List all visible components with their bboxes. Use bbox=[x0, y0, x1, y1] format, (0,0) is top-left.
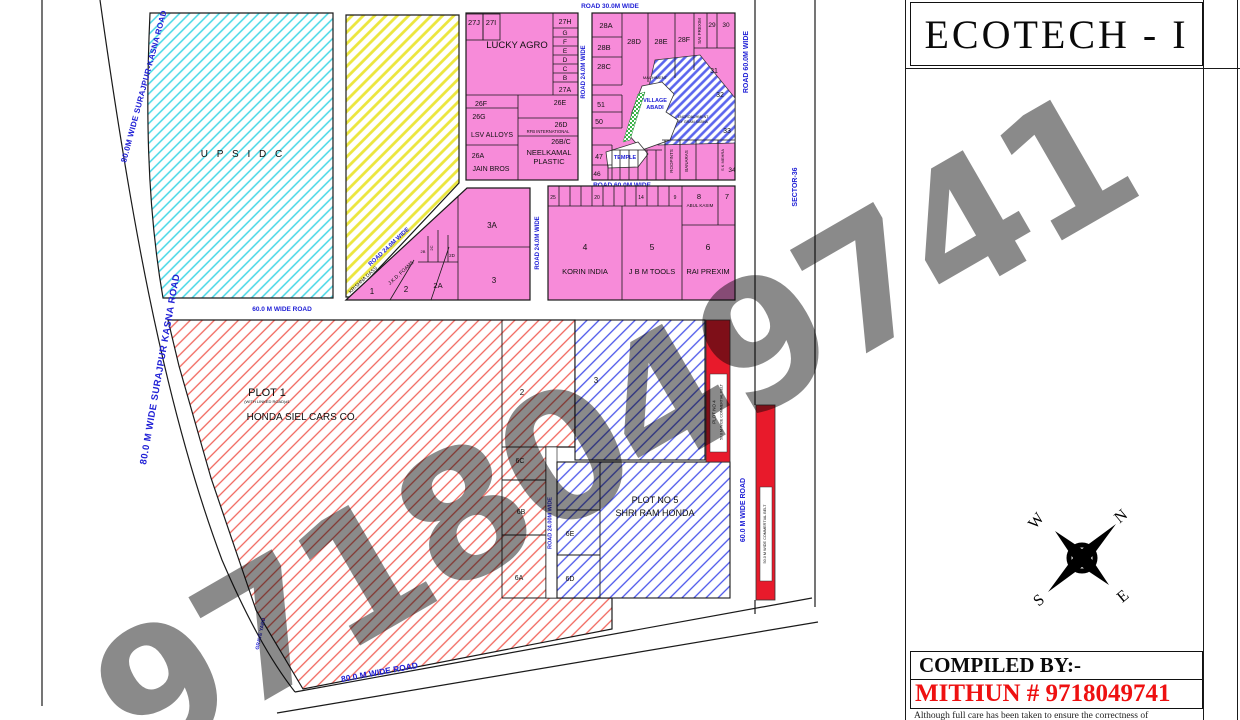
plot-47: 47 bbox=[595, 154, 603, 161]
plot-28e: 28E bbox=[654, 37, 667, 46]
plot-neelkamal-2: PLASTIC bbox=[533, 157, 565, 166]
title-box: ECOTECH - I bbox=[910, 2, 1203, 66]
plot-27i: 27I bbox=[486, 18, 496, 27]
grave-yard-label: GRAVE YARD bbox=[255, 617, 268, 650]
plot-sai-prexim: SAI PREXIM bbox=[697, 18, 702, 44]
plot-31: 31 bbox=[710, 68, 718, 75]
plot-2d: 2D bbox=[449, 253, 456, 258]
panel-top-rule bbox=[905, 68, 1240, 69]
belt1-label-1: PLOT NO 4 bbox=[712, 400, 717, 424]
plot-26e: 26E bbox=[554, 100, 567, 107]
plot-27h: 27H bbox=[559, 19, 572, 26]
plot-27a: 27A bbox=[559, 87, 572, 94]
plot-3-bottom: 3 bbox=[594, 376, 599, 385]
shri-ram-honda-area: 3 6E 6D PLOT NO 5 SHRI RAM HONDA bbox=[557, 320, 730, 598]
plot-3a: 3A bbox=[487, 221, 497, 230]
sheet-right-border bbox=[1237, 0, 1238, 720]
plot-28b: 28B bbox=[597, 43, 610, 52]
plot-2b: 2B bbox=[421, 249, 426, 254]
plot-d: D bbox=[563, 57, 568, 64]
plot-6e: 6E bbox=[566, 531, 575, 538]
plot-8: 8 bbox=[697, 192, 701, 201]
compiled-by-box: COMPILED BY:- bbox=[910, 651, 1203, 680]
plot-f: F bbox=[563, 39, 567, 46]
road-24m-top-label: ROAD 24.0M WIDE bbox=[581, 45, 587, 98]
map-title: ECOTECH - I bbox=[924, 11, 1188, 58]
plot-c: C bbox=[563, 66, 568, 73]
plot-32: 32 bbox=[716, 92, 724, 99]
plot-50: 50 bbox=[595, 119, 603, 126]
temple-label: TEMPLE bbox=[614, 155, 637, 161]
compass-s: S bbox=[1030, 591, 1048, 610]
compass-w: W bbox=[1025, 509, 1048, 532]
plot-jbm-tools: J B M TOOLS bbox=[629, 267, 675, 276]
plot-roopints: ROOPINTS bbox=[669, 149, 674, 173]
plot-1: 1 bbox=[370, 287, 375, 296]
plot-2-bottom: 2 bbox=[520, 388, 525, 397]
map-sheet: U P S I D C 27J 27I LUCKY AGRO 27H G F E… bbox=[0, 0, 1240, 720]
site-map: U P S I D C 27J 27I LUCKY AGRO 27H G F E… bbox=[0, 0, 905, 720]
top-block-left: 27J 27I LUCKY AGRO 27H G F E D C B 27A 2… bbox=[466, 13, 578, 180]
plot-27j: 27J bbox=[468, 18, 480, 27]
plot-26d: 26D bbox=[555, 122, 568, 129]
plot-g: G bbox=[562, 30, 567, 37]
strip-25: 25 bbox=[550, 195, 556, 201]
plot-abul-kasim: ABUL KASIM bbox=[687, 203, 714, 208]
sector-36-label: SECTOR-36 bbox=[792, 167, 799, 206]
plot-4: 4 bbox=[583, 242, 588, 252]
plot-5-label: PLOT NO 5 bbox=[632, 495, 679, 505]
plot-6a: 6A bbox=[515, 575, 524, 582]
machiment-label: MACHIMENT bbox=[643, 75, 668, 80]
plot-28d: 28D bbox=[627, 37, 641, 46]
plot-1-sub: (WITH LINKED ROAD)#1 bbox=[244, 399, 290, 404]
plot-rfb-international: RFB INTERNATIONAL bbox=[527, 129, 570, 134]
compass-e: E bbox=[1114, 587, 1132, 606]
panel-divider-line bbox=[905, 0, 906, 720]
plot-26bc: 26B/C bbox=[551, 139, 570, 146]
village-abadi-label: VILLAGE bbox=[643, 98, 667, 104]
plot-korin-india: KORIN INDIA bbox=[562, 267, 608, 276]
compass-n: N bbox=[1111, 506, 1131, 527]
upsidc-label: U P S I D C bbox=[201, 149, 286, 160]
road-30m-label: ROAD 30.0M WIDE bbox=[581, 3, 639, 10]
plot-6d: 6D bbox=[566, 576, 575, 583]
plot-6: 6 bbox=[706, 242, 711, 252]
plot-2c: 2C bbox=[429, 245, 434, 250]
encroachment-label-2: BY GRAM SABHA bbox=[678, 120, 708, 124]
plot-b: B bbox=[563, 75, 567, 82]
compiled-by-label: COMPILED BY:- bbox=[911, 653, 1202, 678]
plot-e: E bbox=[563, 48, 568, 55]
plot-33: 33 bbox=[723, 128, 731, 135]
plot-26a: 26A bbox=[472, 153, 485, 160]
commercial-belt-1: PLOT NO 4 50.0 M WIDE COMMERTIAL BELT bbox=[706, 320, 730, 462]
strip-20: 20 bbox=[594, 195, 600, 201]
plot-30: 30 bbox=[722, 22, 730, 29]
compass-star bbox=[1048, 524, 1116, 592]
strip-14: 14 bbox=[638, 195, 644, 201]
plot-2a: 2A bbox=[433, 281, 442, 290]
plot-jain-bros: JAIN BROS bbox=[473, 166, 510, 173]
plot-lsv-alloys: LSV ALLOYS bbox=[471, 132, 513, 139]
plot-1-honda: PLOT 1 bbox=[248, 387, 286, 399]
encroachment-label: ENCROACHMENT bbox=[678, 115, 710, 119]
mid-block-right: 25 20 14 9 8 ABUL KASIM 7 4 KORIN INDIA … bbox=[548, 186, 735, 300]
road-60m-wide-label: 60.0 M WIDE ROAD bbox=[252, 306, 312, 313]
belt2-label: 50.0 M WIDE COMMERTIAL BELT bbox=[763, 504, 767, 564]
plot-51: 51 bbox=[597, 102, 605, 109]
plot-34: 34 bbox=[728, 167, 736, 174]
plot-lucky-agro: LUCKY AGRO bbox=[486, 40, 548, 51]
compass-rose: N W S E bbox=[1012, 492, 1152, 627]
plot-28f: 28F bbox=[678, 37, 690, 44]
plot-neelkamal: NEELKAMAL bbox=[526, 148, 571, 157]
plot-3-mid: 3 bbox=[492, 276, 497, 285]
panel-inner-line bbox=[1203, 0, 1204, 720]
commercial-belt-2: 50.0 M WIDE COMMERTIAL BELT bbox=[756, 405, 775, 600]
plot-7: 7 bbox=[725, 192, 729, 201]
road-24m-lower-label: ROAD 24.00M WIDE bbox=[548, 497, 554, 549]
road-60m-lower-label: 60.0 M WIDE ROAD bbox=[740, 478, 747, 542]
plot-6c: 6C bbox=[516, 458, 525, 465]
disclaimer-text: Although full care has been taken to ens… bbox=[914, 711, 1204, 720]
plot-5-label-2: SHRI RAM HONDA bbox=[615, 508, 694, 518]
plot-26f: 26F bbox=[475, 101, 487, 108]
plot-honda-siel: HONDA SIEL CARS CO. bbox=[247, 412, 358, 423]
plot-sk-mehra: S K MEHRA bbox=[720, 149, 725, 171]
top-block-right: 28A 28B 28C 28D 28E 28F SAI PREXIM 29 30… bbox=[592, 13, 736, 180]
plot-28c: 28C bbox=[597, 62, 611, 71]
road-24m-mid-label: ROAD 24.0M WIDE bbox=[535, 216, 541, 269]
author-box: MITHUN # 9718049741 bbox=[910, 679, 1203, 709]
plot-banaras: BANARAS bbox=[684, 150, 689, 172]
plot-rai-prexim: RAI PREXIM bbox=[686, 267, 729, 276]
plot-28a: 28A bbox=[599, 21, 612, 30]
plot-29: 29 bbox=[708, 22, 716, 29]
plot-26g: 26G bbox=[472, 114, 485, 121]
plot-5: 5 bbox=[650, 242, 655, 252]
surajpur-kasna-bottom-label: 80.0 M WIDE SURAJPUR KASNA ROAD bbox=[138, 273, 182, 466]
village-abadi-label-2: ABADI bbox=[646, 105, 664, 111]
strip-9: 9 bbox=[674, 195, 677, 201]
honda-area: PLOT 1 (WITH LINKED ROAD)#1 HONDA SIEL C… bbox=[168, 320, 612, 689]
plot-2-mid: 2 bbox=[404, 285, 409, 294]
road-60m-right-label: ROAD 60.0M WIDE bbox=[743, 31, 750, 94]
belt1-label-2: 50.0 M WIDE COMMERTIAL BELT bbox=[720, 383, 724, 440]
plot-6b: 6B bbox=[517, 509, 526, 516]
author-name: MITHUN # 9718049741 bbox=[911, 680, 1202, 708]
plot-46: 46 bbox=[593, 171, 601, 178]
